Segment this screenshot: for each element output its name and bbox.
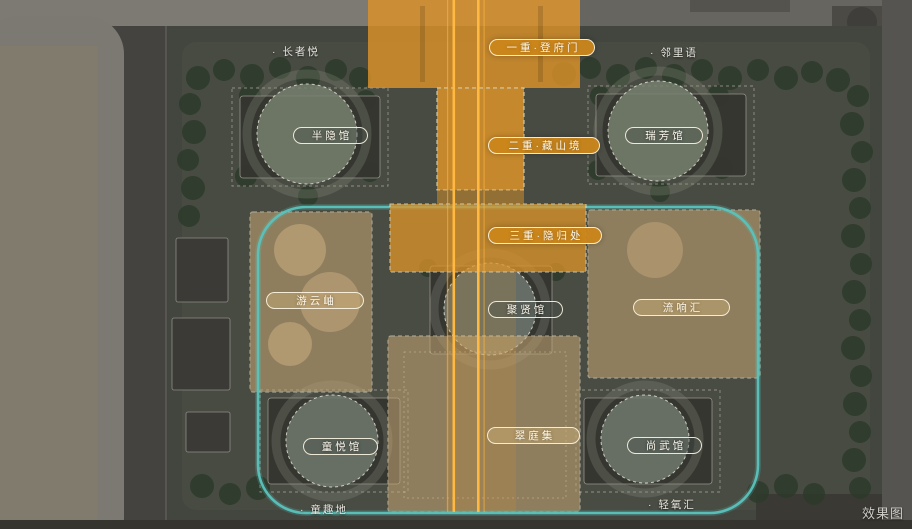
right-road — [882, 0, 912, 529]
gate-label-3: 三重·隐归处 — [488, 227, 602, 244]
parcel-label-liuxianghui: 流响汇 — [633, 299, 730, 316]
pavilion-label-ruifang: 瑞芳馆 — [625, 127, 703, 144]
parcel-label-cuitingji: 翠庭集 — [487, 427, 580, 444]
parcel-label-youyunxiu: 游云岫 — [266, 292, 364, 309]
rendering-watermark: 效果图 — [862, 503, 904, 522]
gate-label-2: 二重·藏山境 — [488, 137, 600, 154]
poi-label-linliyu: · 邻里语 — [650, 45, 698, 60]
pavilion-label-shangwu: 尚武馆 — [627, 437, 702, 454]
gate-label-1: 一重·登府门 — [489, 39, 595, 56]
poi-label-qingyanghui: · 轻氧汇 — [648, 497, 696, 512]
site-plan-basemap — [0, 0, 912, 529]
pavilion-label-tongyue: 童悦馆 — [303, 438, 378, 455]
site-plan-rendering: 一重·登府门 二重·藏山境 三重·隐归处 半隐馆 瑞芳馆 聚贤馆 童悦馆 尚武馆… — [0, 0, 912, 529]
poi-label-tongqudi: · 童趣地 — [300, 502, 348, 517]
poi-label-zhangzheyue: · 长者悦 — [272, 44, 320, 59]
pavilion-label-banyin: 半隐馆 — [293, 127, 368, 144]
pavilion-label-juxian: 聚贤馆 — [488, 301, 563, 318]
